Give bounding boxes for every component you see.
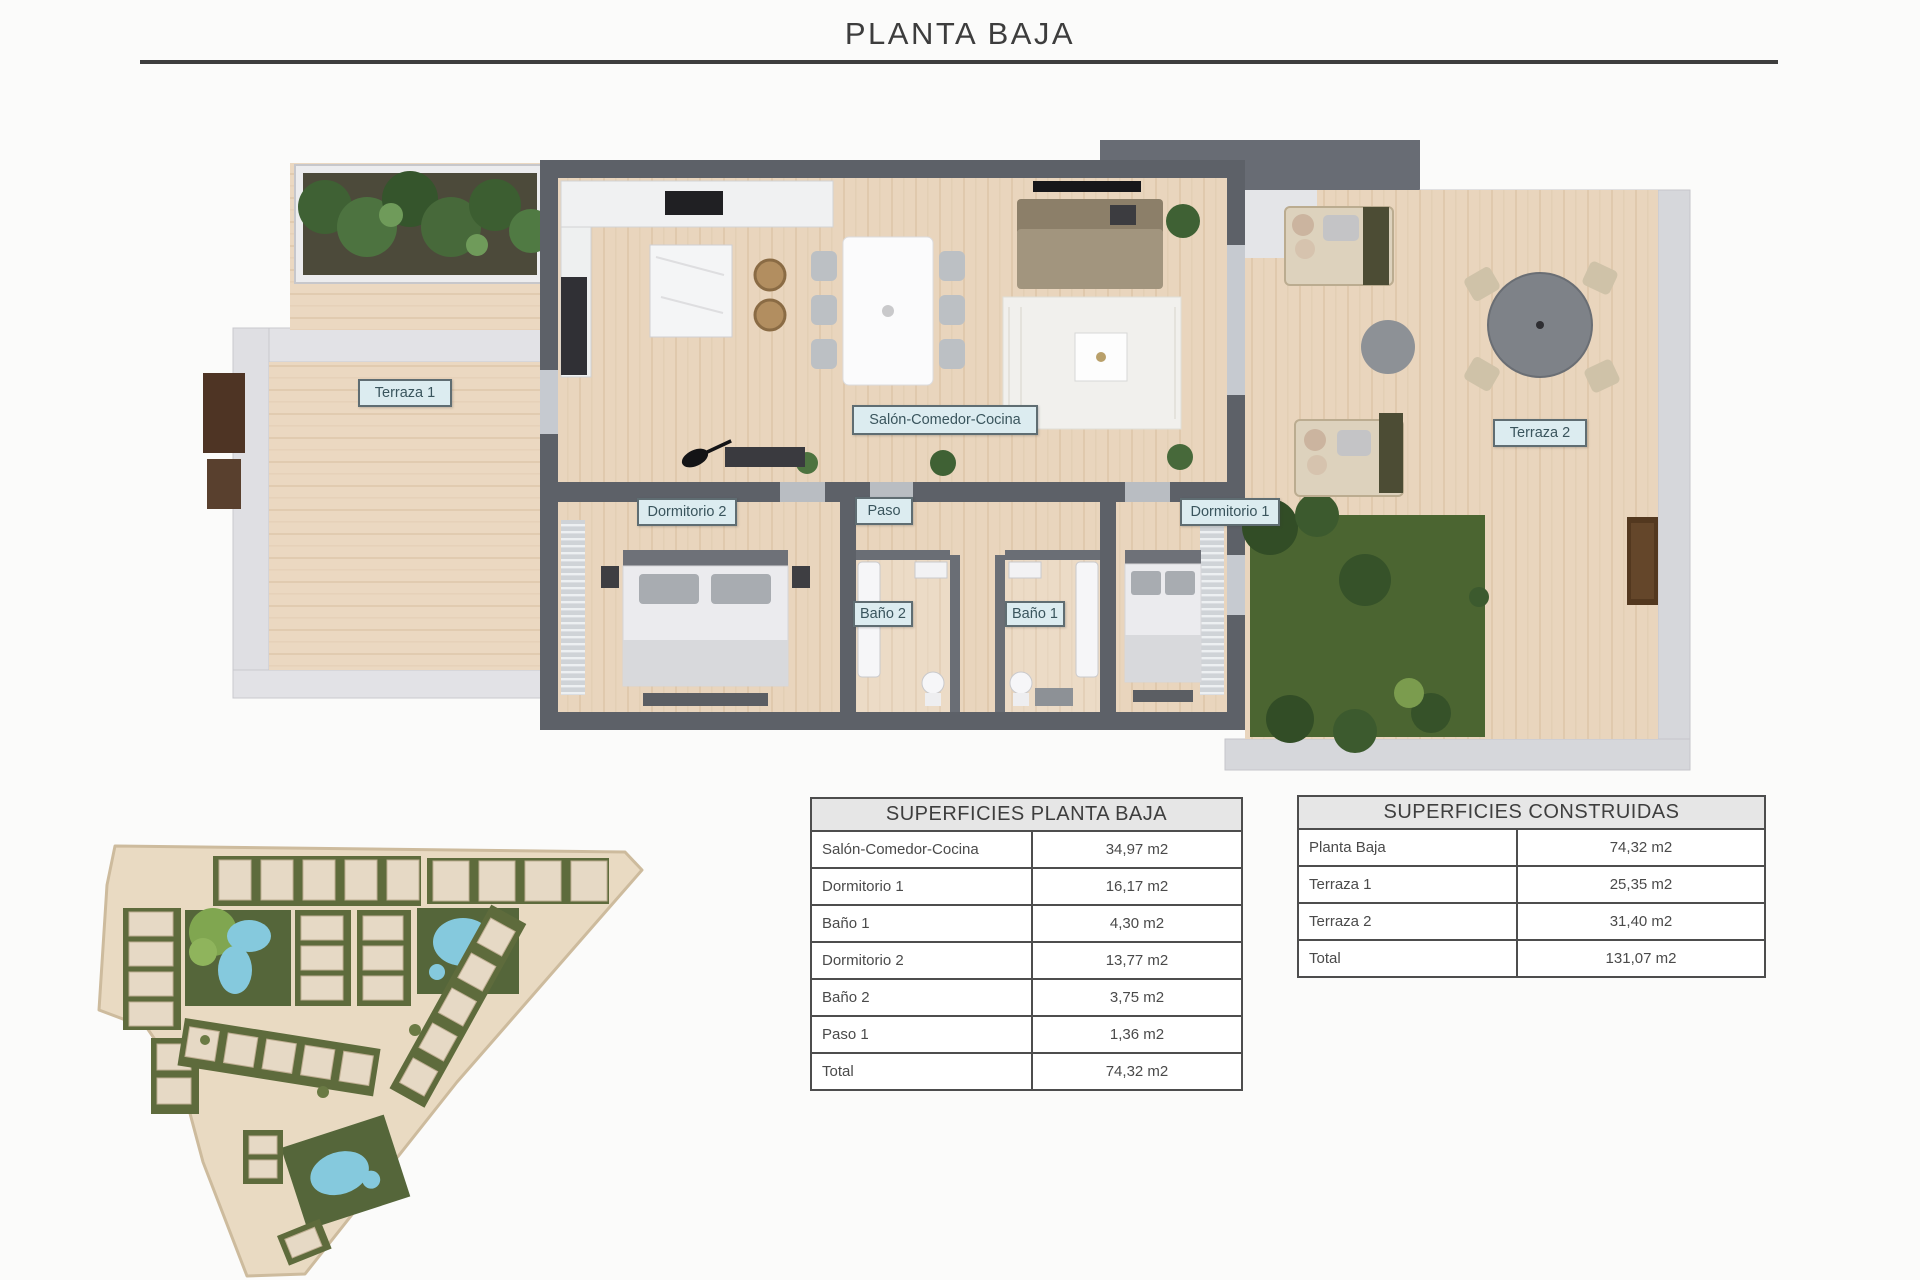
row-value: 3,75 m2 bbox=[1032, 979, 1242, 1016]
row-label: Planta Baja bbox=[1298, 829, 1517, 866]
main-unit bbox=[540, 160, 1245, 730]
row-label: Terraza 1 bbox=[1298, 866, 1517, 903]
table-title: SUPERFICIES PLANTA BAJA bbox=[811, 798, 1242, 831]
planter-box bbox=[295, 165, 553, 283]
row-value: 34,97 m2 bbox=[1032, 831, 1242, 868]
room-label-paso: Paso bbox=[855, 497, 913, 525]
row-value: 16,17 m2 bbox=[1032, 868, 1242, 905]
table-header-row: SUPERFICIES CONSTRUIDAS bbox=[1298, 796, 1765, 829]
house-row-top-left bbox=[213, 856, 421, 906]
house-row-top-right bbox=[427, 858, 609, 904]
row-value: 1,36 m2 bbox=[1032, 1016, 1242, 1053]
table-superficies-planta-baja: SUPERFICIES PLANTA BAJA Salón-Comedor-Co… bbox=[810, 797, 1243, 1091]
row-label: Baño 2 bbox=[811, 979, 1032, 1016]
row-label: Terraza 2 bbox=[1298, 903, 1517, 940]
page-title: PLANTA BAJA bbox=[0, 16, 1920, 52]
floor-plan-sheet: PLANTA BAJA bbox=[0, 0, 1920, 1280]
room-label-dormitorio-2: Dormitorio 2 bbox=[637, 498, 737, 526]
table-superficies-construidas: SUPERFICIES CONSTRUIDAS Planta Baja74,32… bbox=[1297, 795, 1766, 978]
row-value: 13,77 m2 bbox=[1032, 942, 1242, 979]
coffee-table bbox=[1361, 320, 1415, 374]
row-label: Salón-Comedor-Cocina bbox=[811, 831, 1032, 868]
lounge-sofa-2 bbox=[1295, 413, 1403, 496]
table-row: Salón-Comedor-Cocina34,97 m2 bbox=[811, 831, 1242, 868]
terraza-1-area bbox=[203, 163, 553, 698]
room-label-terraza-1: Terraza 1 bbox=[358, 379, 452, 407]
row-value: 4,30 m2 bbox=[1032, 905, 1242, 942]
table-row: Terraza 125,35 m2 bbox=[1298, 866, 1765, 903]
table-row: Total131,07 m2 bbox=[1298, 940, 1765, 977]
room-label-dormitorio-1: Dormitorio 1 bbox=[1180, 498, 1280, 526]
table-header-row: SUPERFICIES PLANTA BAJA bbox=[811, 798, 1242, 831]
dining-area bbox=[811, 237, 965, 385]
central-pool-garden bbox=[185, 908, 291, 1006]
table-row: Planta Baja74,32 m2 bbox=[1298, 829, 1765, 866]
room-label-bano-1: Baño 1 bbox=[1005, 601, 1065, 627]
garden-patch bbox=[1242, 493, 1489, 753]
lounge-sofa-1 bbox=[1285, 207, 1393, 285]
table-title: SUPERFICIES CONSTRUIDAS bbox=[1298, 796, 1765, 829]
table-row: Baño 14,30 m2 bbox=[811, 905, 1242, 942]
row-label: Paso 1 bbox=[811, 1016, 1032, 1053]
room-label-bano-2: Baño 2 bbox=[853, 601, 913, 627]
room-label-terraza-2: Terraza 2 bbox=[1493, 419, 1587, 447]
terraza-2-area bbox=[1225, 190, 1690, 770]
table-row: Terraza 231,40 m2 bbox=[1298, 903, 1765, 940]
table-row: Dormitorio 116,17 m2 bbox=[811, 868, 1242, 905]
row-label: Baño 1 bbox=[811, 905, 1032, 942]
row-value: 74,32 m2 bbox=[1032, 1053, 1242, 1090]
floor-plan-render bbox=[195, 125, 1710, 775]
title-rule bbox=[140, 60, 1778, 64]
row-value: 131,07 m2 bbox=[1517, 940, 1765, 977]
row-label: Dormitorio 2 bbox=[811, 942, 1032, 979]
room-label-salon: Salón-Comedor-Cocina bbox=[852, 405, 1038, 435]
site-plan-map bbox=[85, 830, 685, 1280]
row-value: 31,40 m2 bbox=[1517, 903, 1765, 940]
table-row: Baño 23,75 m2 bbox=[811, 979, 1242, 1016]
table-row: Paso 11,36 m2 bbox=[811, 1016, 1242, 1053]
row-value: 25,35 m2 bbox=[1517, 866, 1765, 903]
table-row: Dormitorio 213,77 m2 bbox=[811, 942, 1242, 979]
row-label: Total bbox=[811, 1053, 1032, 1090]
row-label: Total bbox=[1298, 940, 1517, 977]
row-value: 74,32 m2 bbox=[1517, 829, 1765, 866]
row-label: Dormitorio 1 bbox=[811, 868, 1032, 905]
terraza-1-gate bbox=[203, 373, 245, 453]
table-row: Total74,32 m2 bbox=[811, 1053, 1242, 1090]
